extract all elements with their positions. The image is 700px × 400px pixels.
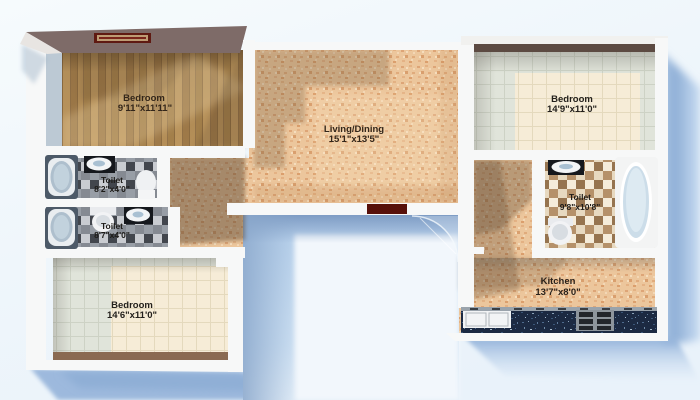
svg-text:Toilet: Toilet	[569, 192, 591, 202]
svg-text:13'7"x8'0": 13'7"x8'0"	[535, 287, 580, 298]
svg-text:9'8"x10'8": 9'8"x10'8"	[560, 202, 600, 212]
svg-text:14'9"x11'0": 14'9"x11'0"	[547, 104, 597, 115]
svg-text:Kitchen: Kitchen	[541, 276, 576, 287]
svg-text:15'1"x13'5": 15'1"x13'5"	[329, 134, 380, 145]
svg-text:14'6"x11'0": 14'6"x11'0"	[107, 310, 157, 321]
svg-text:8'2"x4'0": 8'2"x4'0"	[94, 184, 130, 194]
svg-text:8'7"x4'0": 8'7"x4'0"	[94, 230, 130, 240]
svg-text:9'11"x11'11": 9'11"x11'11"	[118, 103, 172, 114]
